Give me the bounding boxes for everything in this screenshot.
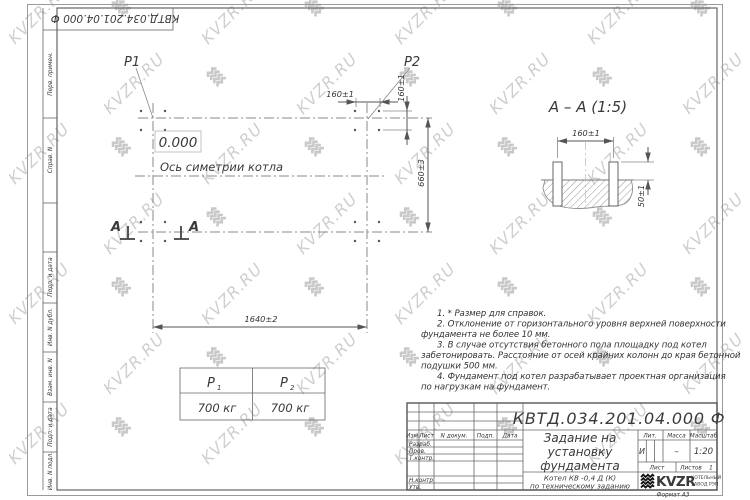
watermark-icon: [206, 206, 226, 226]
watermark-icon: [497, 136, 517, 156]
load-table-value-p1: 700 кг: [198, 401, 238, 415]
watermark-icon: [592, 206, 612, 226]
plan-elevation-value: 0.000: [159, 135, 198, 151]
section-title: A – A (1:5): [548, 98, 627, 116]
watermark-text: KVZR.RU: [99, 189, 168, 258]
drawing-canvas: KVZR.RUKVZR.RUKVZR.RUKVZR.RUKVZR.RUKVZR.…: [0, 0, 750, 500]
title-block-subtitle-line2: по техническому заданию: [530, 482, 630, 491]
lit-value: И: [639, 447, 645, 456]
sheets-value: 1: [709, 466, 713, 472]
strip-label-sprav-n: Справ. N: [48, 146, 54, 173]
sheet-label: Лист: [649, 466, 665, 472]
sign-label-utv: Утв.: [409, 485, 421, 491]
watermark-text: KVZR.RU: [485, 189, 554, 258]
title-block-title-line3: фундамента: [540, 459, 619, 473]
plan-load-p1-label: P1: [124, 55, 140, 70]
note-line: 2. Отклонение от горизонтального уровня …: [437, 320, 726, 330]
watermark-text: KVZR.RU: [390, 0, 459, 48]
watermark-text: KVZR.RU: [197, 119, 266, 188]
rev-header-podp: Подп.: [477, 434, 495, 440]
note-line: 4. Фундамент под котел разрабатывает про…: [437, 372, 726, 382]
note-line: по нагрузкам на фундамент.: [421, 383, 550, 393]
title-block-title-line2: установку: [547, 445, 614, 459]
rev-header-list: Лист: [418, 434, 434, 440]
watermark-icon: [497, 276, 517, 296]
plan-axis-label: Ось симетрии котла: [160, 160, 283, 174]
title-block-title-line1: Задание на: [544, 431, 617, 445]
load-table-header-p1-sub: 1: [217, 384, 221, 392]
strip-label-podp-i-data-2: Подп. и дата: [48, 407, 54, 447]
watermark-text: KVZR.RU: [4, 399, 73, 468]
watermark-icon: [206, 66, 226, 86]
note-line: фундамента не более 10 мм.: [421, 330, 550, 340]
watermark-text: KVZR.RU: [197, 0, 266, 48]
strip-label-inv-n-dubl: Инв. N дубл.: [48, 308, 54, 346]
watermark-icon: [111, 276, 131, 296]
watermark-text: KVZR.RU: [583, 0, 652, 48]
strip-label-inv-n-podl: Инв. N подл.: [48, 452, 54, 490]
watermark-text: KVZR.RU: [99, 329, 168, 398]
watermark-text: KVZR.RU: [485, 49, 554, 118]
section-dim-50: 50±1: [636, 185, 646, 208]
load-table-header-p2-sub: 2: [290, 384, 295, 392]
sign-label-razrab: Разраб.: [409, 442, 432, 448]
watermark-icon: [690, 276, 710, 296]
strip-label-perv-primen: Перв. примен.: [48, 52, 54, 96]
lit-header: Лит.: [642, 434, 657, 440]
format-label: Формат А3: [656, 493, 689, 499]
notes: 1. * Размер для справок. 2. Отклонение о…: [421, 309, 741, 393]
corner-stamp-doc-number: КВТД.034.201.04.000 Ф: [51, 12, 180, 24]
watermark-icon: [592, 66, 612, 86]
watermark-text: KVZR.RU: [4, 259, 73, 328]
watermark-text: KVZR.RU: [292, 329, 361, 398]
watermark-icon: [304, 136, 324, 156]
strip-label-vzam-inv-n: Взам. инв. N: [48, 358, 54, 396]
stud-right: [609, 162, 618, 206]
kvzr-logo-caption-line1: КОТЕЛЬНЫЙ: [691, 474, 721, 481]
watermark-icon: [111, 416, 131, 436]
watermark-text: KVZR.RU: [678, 49, 747, 118]
section-dim-160: 160±1: [572, 128, 600, 138]
watermark-text: KVZR.RU: [678, 189, 747, 258]
scale-value: 1:20: [694, 447, 714, 457]
sign-label-tkontr: Т.контр.: [409, 456, 434, 462]
load-table-header-p2: P: [280, 376, 288, 391]
drawing-sheet: KVZR.RUKVZR.RUKVZR.RUKVZR.RUKVZR.RUKVZR.…: [0, 0, 750, 500]
rev-header-izm: Изм.: [406, 434, 420, 440]
watermark-icon: [304, 276, 324, 296]
load-table-value-p2: 700 кг: [271, 401, 311, 415]
watermark-icon: [399, 206, 419, 226]
kvzr-logo-caption-line2: ЗАВОД РЭП: [691, 482, 718, 488]
plan-dim-1640: 1640±2: [245, 314, 278, 324]
note-line: подушки 500 мм.: [421, 362, 498, 372]
watermark-icon: [304, 416, 324, 436]
watermark-icon: [111, 136, 131, 156]
mass-header: Масса: [667, 434, 686, 440]
sign-label-nkontr: Н.контр.: [409, 478, 435, 484]
watermark-icon: [690, 136, 710, 156]
plan-dim-160-horizontal: 160±1: [326, 89, 354, 99]
watermark-text: KVZR.RU: [583, 259, 652, 328]
kvzr-logo-coil-icon: [641, 475, 654, 488]
rev-header-n-dokum: N докум.: [441, 434, 468, 440]
plan-dim-160-vertical: 160±1: [396, 74, 406, 102]
scale-header: Масштаб: [690, 434, 718, 440]
plan-section-letter-left: A: [110, 220, 121, 235]
stud-left: [553, 162, 562, 206]
note-line: 3. В случае отсутствия бетонного пола пл…: [437, 341, 707, 351]
load-table-header-p1: P: [207, 376, 215, 391]
section-view: A – A (1:5) 160±1 50±1: [541, 98, 654, 208]
kvzr-logo: KVZR КОТЕЛЬНЫЙ ЗАВОД РЭП: [641, 474, 721, 490]
rev-header-data: Дата: [501, 434, 517, 440]
plan-load-p2-label: P2: [404, 55, 420, 70]
sign-label-prov: Пров.: [409, 449, 426, 455]
strip-label-podp-i-data-1: Подп. и дата: [48, 257, 54, 297]
watermark-text: KVZR.RU: [292, 49, 361, 118]
watermark-text: KVZR.RU: [678, 329, 747, 398]
mass-value: –: [674, 447, 679, 457]
watermark-text: KVZR.RU: [4, 119, 73, 188]
corner-stamp: КВТД.034.201.04.000 Ф: [51, 8, 180, 30]
title-block-doc-number: КВТД.034.201.04.000 Ф: [513, 409, 726, 428]
note-line: 1. * Размер для справок.: [437, 309, 546, 319]
plan-dim-660: 660±3: [416, 159, 426, 187]
watermark-text: KVZR.RU: [292, 189, 361, 258]
plan-section-letter-right: A: [188, 220, 199, 235]
watermark-icon: [399, 346, 419, 366]
sheets-label: Листов: [679, 466, 702, 472]
watermark-icon: [206, 346, 226, 366]
note-line: забетонировать. Расстояние от осей крайн…: [421, 351, 741, 361]
